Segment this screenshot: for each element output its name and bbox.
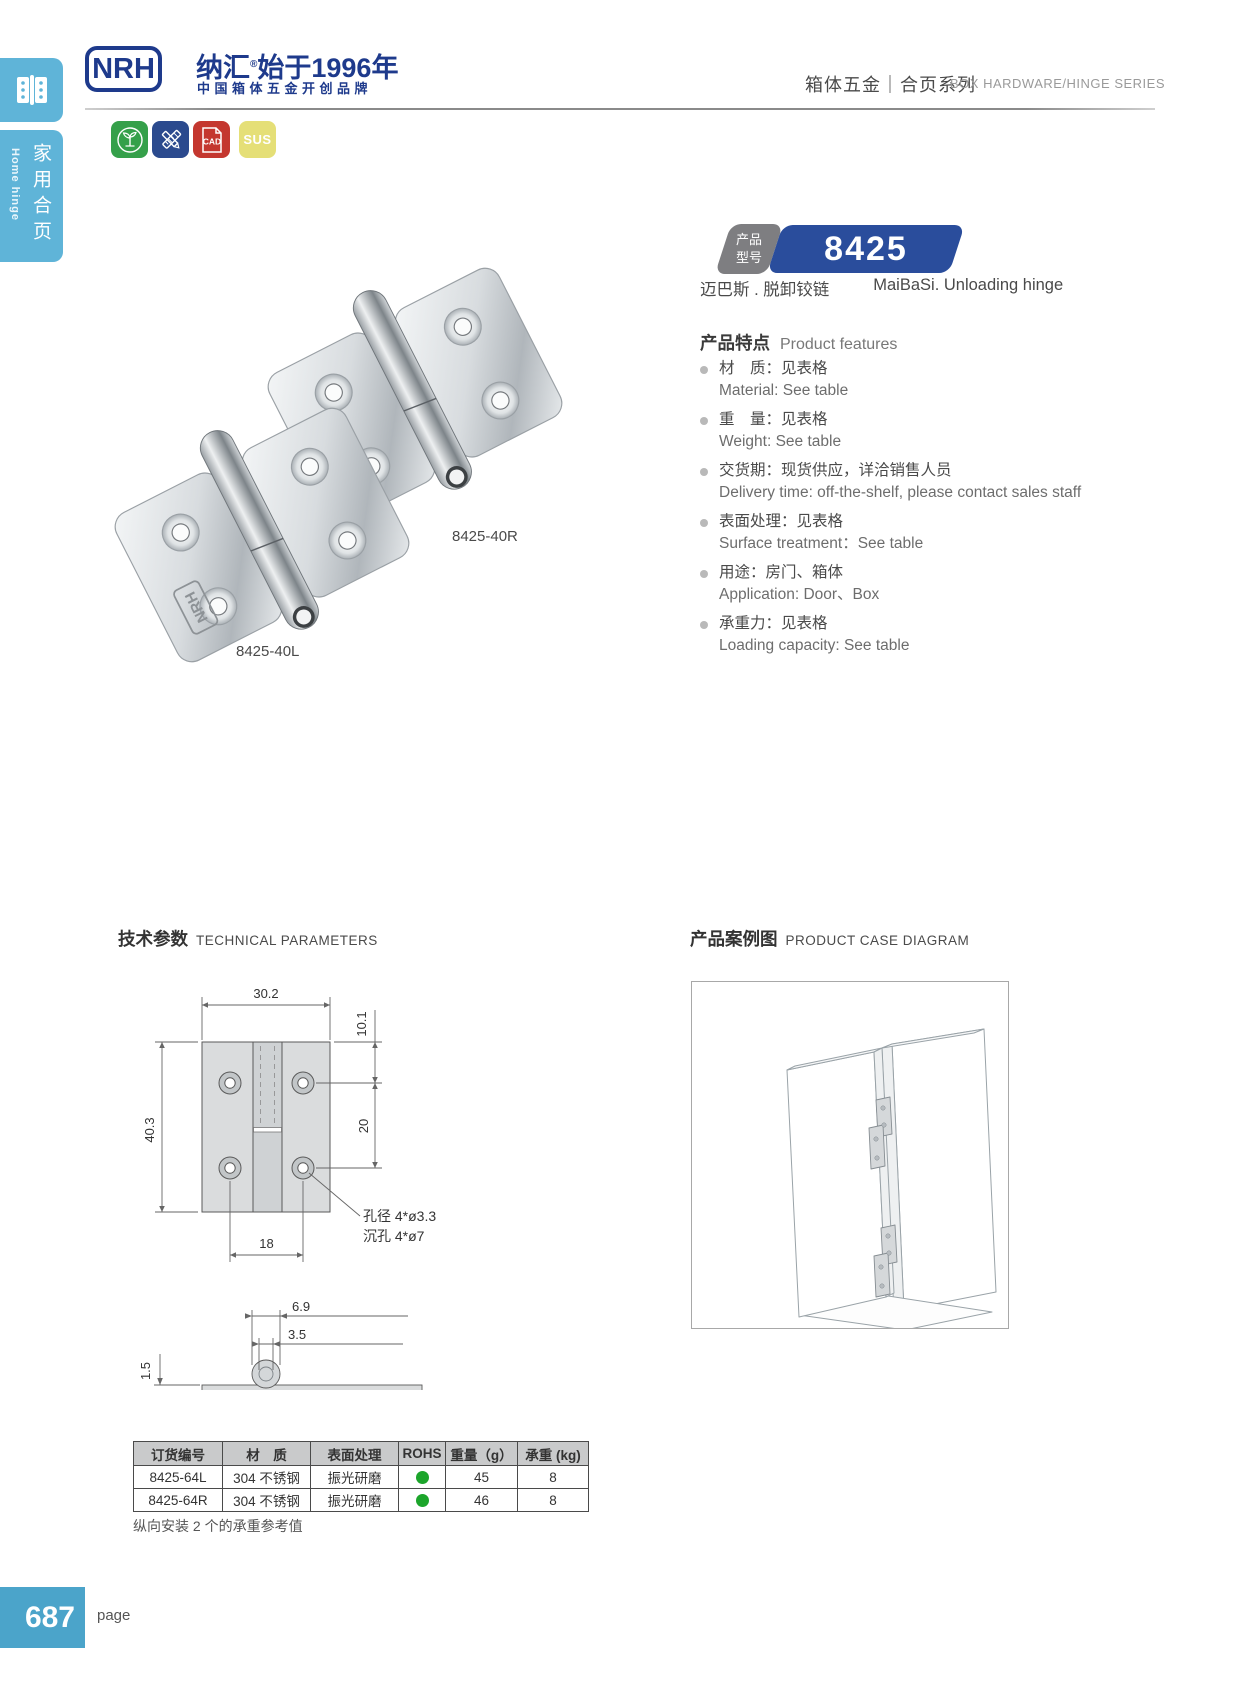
hole-note-2: 沉孔 4*ø7 <box>363 1228 425 1244</box>
catalog-page: 家用合页 Home hinge NRH 纳汇®始于1996年 中国箱体五金开创品… <box>0 0 1240 1683</box>
hinge-icon <box>14 72 50 108</box>
feature-item: 重 量：见表格Weight: See table <box>700 409 1130 453</box>
feature-item: 材 质：见表格Material: See table <box>700 358 1130 402</box>
category-label-en: Home hinge <box>9 148 21 221</box>
subtitle-en: MaiBaSi. Unloading hinge <box>873 276 1063 300</box>
feature-item: 交货期：现货供应，详洽销售人员Delivery time: off-the-sh… <box>700 460 1130 504</box>
dim-width: 30.2 <box>253 986 278 1001</box>
dim-thickness: 1.5 <box>138 1362 153 1380</box>
col-material: 材 质 <box>223 1442 311 1466</box>
dim-hole-span-h: 18 <box>259 1236 273 1251</box>
logo-text: NRH <box>92 53 155 86</box>
nrh-logo: NRH <box>85 46 162 92</box>
photo-label-right: 8425-40R <box>452 528 518 545</box>
features-title: 产品特点Product features <box>700 330 897 355</box>
feature-item: 承重力：见表格Loading capacity: See table <box>700 613 1130 657</box>
feature-item: 用途：房门、箱体Application: Door、Box <box>700 562 1130 606</box>
page-number-block: 687 <box>0 1587 85 1648</box>
technical-drawing: 30.2 40.3 10.1 20 18 孔径 4*ø3.3 沉孔 4*ø7 6… <box>120 950 640 1390</box>
product-photo-illustration: NRH NRH <box>85 248 575 668</box>
col-load: 承重 (kg) <box>518 1442 589 1466</box>
col-order-no: 订货编号 <box>134 1442 223 1466</box>
col-rohs: ROHS <box>399 1442 446 1466</box>
rohs-pass-dot <box>416 1471 429 1484</box>
tech-params-title: 技术参数TECHNICAL PARAMETERS <box>118 926 378 951</box>
sidebar-tab-category: 家用合页 Home hinge <box>0 130 63 262</box>
header-divider <box>85 108 1155 110</box>
model-number: 8425 <box>775 225 957 273</box>
table-row: 8425-64L 304 不锈钢 振光研磨 45 8 <box>134 1466 589 1489</box>
brand-slogan: 中国箱体五金开创品牌 <box>197 78 372 97</box>
eco-icon <box>111 121 148 158</box>
dim-height: 40.3 <box>142 1117 157 1142</box>
dim-hole-span-v: 20 <box>356 1119 371 1133</box>
page-label: page <box>97 1607 130 1624</box>
col-weight: 重量（g） <box>446 1442 518 1466</box>
col-surface: 表面处理 <box>311 1442 399 1466</box>
rohs-pass-dot <box>416 1494 429 1507</box>
case-diagram-illustration <box>692 982 1008 1328</box>
photo-label-left: 8425-40L <box>236 643 299 660</box>
dim-pin: 3.5 <box>288 1327 306 1342</box>
model-number-badge: 8425 <box>767 225 965 273</box>
category-label-zh: 家用合页 <box>27 143 54 247</box>
design-tools-icon <box>152 121 189 158</box>
series-title-en: BOX HARDWARE/HINGE SERIES <box>950 76 1165 91</box>
case-diagram-title: 产品案例图PRODUCT CASE DIAGRAM <box>690 926 969 951</box>
subtitle-zh: 迈巴斯 . 脱卸铰链 <box>700 276 829 300</box>
product-subtitle: 迈巴斯 . 脱卸铰链 MaiBaSi. Unloading hinge <box>700 276 1063 300</box>
svg-text:CAD: CAD <box>202 136 220 146</box>
dim-knuckle: 6.9 <box>292 1299 310 1314</box>
table-row: 8425-64R 304 不锈钢 振光研磨 46 8 <box>134 1489 589 1512</box>
sus-label: SUS <box>243 132 271 147</box>
dim-top-offset: 10.1 <box>354 1011 369 1036</box>
hole-note-1: 孔径 4*ø3.3 <box>363 1208 436 1224</box>
case-diagram-frame <box>691 981 1009 1329</box>
table-header-row: 订货编号 材 质 表面处理 ROHS 重量（g） 承重 (kg) <box>134 1442 589 1466</box>
feature-list: 材 质：见表格Material: See table 重 量：见表格Weight… <box>700 358 1130 664</box>
table-note: 纵向安装 2 个的承重参考值 <box>133 1516 303 1536</box>
sus-icon: SUS <box>239 121 276 158</box>
spec-table: 订货编号 材 质 表面处理 ROHS 重量（g） 承重 (kg) 8425-64… <box>133 1441 589 1512</box>
feature-item: 表面处理：见表格Surface treatment：See table <box>700 511 1130 555</box>
sidebar-tab-hinge <box>0 58 63 122</box>
cad-icon: CAD <box>193 121 230 158</box>
